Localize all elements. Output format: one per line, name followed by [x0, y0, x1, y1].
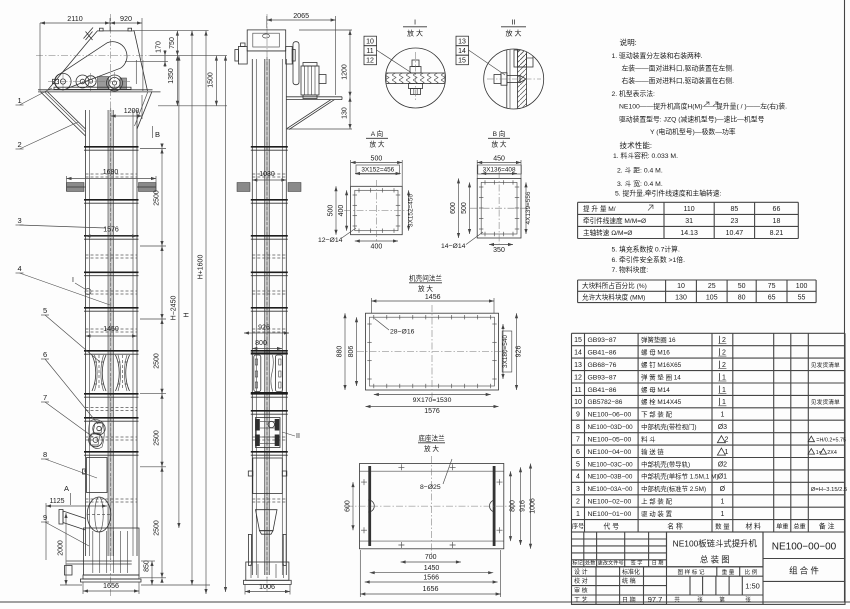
- svg-text:2: 2: [722, 350, 726, 357]
- svg-text:II: II: [296, 433, 300, 440]
- svg-text:1: 1: [720, 511, 724, 518]
- svg-text:左装——面对进料口,驱动装置在左侧.: 左装——面对进料口,驱动装置在左侧.: [622, 64, 735, 73]
- svg-text:8.21: 8.21: [770, 230, 784, 237]
- svg-text:2. 斗 距: 0.4 M.: 2. 斗 距: 0.4 M.: [617, 167, 663, 175]
- svg-text:机壳间法兰: 机壳间法兰: [409, 274, 442, 283]
- svg-text:450: 450: [493, 156, 505, 163]
- svg-text:130: 130: [675, 295, 687, 302]
- svg-text:II: II: [511, 18, 515, 27]
- svg-text:750: 750: [169, 37, 176, 49]
- svg-text:GB93−87: GB93−87: [588, 374, 617, 381]
- svg-text:7: 7: [43, 393, 47, 402]
- svg-text:见发货清单: 见发货清单: [811, 398, 840, 406]
- svg-text:2: 2: [722, 337, 726, 344]
- svg-text:2X4: 2X4: [827, 450, 837, 456]
- svg-text:1:50: 1:50: [745, 582, 760, 591]
- svg-text:3X136=408: 3X136=408: [483, 167, 516, 174]
- svg-text:放 大: 放 大: [491, 140, 506, 149]
- svg-text:13: 13: [574, 362, 582, 369]
- svg-text:数 量: 数 量: [715, 521, 730, 530]
- svg-text:600: 600: [450, 202, 457, 214]
- svg-text:NE100板链斗式提升机: NE100板链斗式提升机: [673, 539, 758, 549]
- svg-text:25: 25: [708, 283, 716, 290]
- svg-text:1576: 1576: [103, 227, 119, 234]
- svg-text:500: 500: [461, 202, 468, 214]
- svg-text:比 例: 比 例: [745, 568, 758, 576]
- svg-text:500: 500: [327, 205, 334, 217]
- svg-text:3. 斗 宽: 0.4 M.: 3. 斗 宽: 0.4 M.: [617, 179, 663, 188]
- svg-text:12−Ø14: 12−Ø14: [318, 237, 343, 244]
- svg-text:14−Ø14: 14−Ø14: [441, 243, 466, 250]
- svg-text:1. 驱动装置分左装和右装两种.: 1. 驱动装置分左装和右装两种.: [612, 51, 703, 60]
- svg-text:1. 料斗容积: 0.033 M.: 1. 料斗容积: 0.033 M.: [613, 151, 678, 160]
- svg-text:2: 2: [724, 437, 728, 444]
- svg-text:重 量: 重 量: [722, 568, 735, 576]
- svg-text:85: 85: [731, 206, 739, 213]
- svg-text:50: 50: [738, 283, 746, 290]
- svg-text:右装——面对进料口,驱动装置在右侧.: 右装——面对进料口,驱动装置在右侧.: [622, 76, 735, 85]
- svg-text:6. 牵引件安全系数 >1倍.: 6. 牵引件安全系数 >1倍.: [612, 255, 686, 264]
- svg-text:1: 1: [722, 387, 726, 394]
- svg-text:400: 400: [338, 205, 345, 217]
- svg-text:螺 母 M14: 螺 母 M14: [641, 385, 670, 394]
- svg-text:NE100−04−00: NE100−04−00: [588, 449, 632, 456]
- svg-text:组 合 件: 组 合 件: [789, 566, 819, 576]
- svg-text:11: 11: [366, 48, 373, 55]
- svg-text:驱动装置型号: JZQ (减速机型号)—速比—机型号: 驱动装置型号: JZQ (减速机型号)—速比—机型号: [619, 114, 765, 123]
- svg-text:下 部 装 配: 下 部 装 配: [641, 410, 672, 419]
- svg-text:螺 栓 M14X45: 螺 栓 M14X45: [641, 397, 682, 406]
- svg-text:第: 第: [719, 596, 725, 604]
- svg-text:中部机壳(带检视门): 中部机壳(带检视门): [641, 422, 696, 431]
- svg-text:65: 65: [768, 295, 776, 302]
- svg-text:料 斗: 料 斗: [641, 435, 656, 444]
- svg-text:400: 400: [371, 244, 383, 251]
- svg-text:350: 350: [493, 247, 505, 254]
- svg-text:10: 10: [677, 283, 685, 290]
- svg-text:28−Ø16: 28−Ø16: [390, 329, 415, 336]
- svg-text:31: 31: [685, 218, 693, 225]
- svg-text:2. 机型表示法:: 2. 机型表示法:: [612, 89, 656, 98]
- svg-text:1566: 1566: [423, 575, 439, 582]
- svg-text:2500: 2500: [153, 430, 160, 446]
- svg-text:2: 2: [18, 140, 22, 149]
- svg-text:螺 钉 M16X65: 螺 钉 M16X65: [641, 360, 682, 369]
- svg-text:1656: 1656: [103, 581, 119, 590]
- svg-text:1576: 1576: [424, 408, 440, 415]
- svg-text:1680: 1680: [103, 169, 119, 176]
- svg-text:日 期: 日 期: [622, 596, 636, 604]
- svg-text:放 大: 放 大: [424, 444, 439, 453]
- svg-text:序号: 序号: [572, 522, 584, 530]
- svg-text:张: 张: [745, 596, 751, 604]
- svg-text:23: 23: [731, 218, 739, 225]
- svg-text:NE100−02−00: NE100−02−00: [588, 499, 632, 506]
- svg-text:3X180=540: 3X180=540: [502, 335, 509, 368]
- svg-text:工 艺: 工 艺: [574, 596, 588, 604]
- svg-text:上 部 装 配: 上 部 装 配: [641, 497, 672, 506]
- svg-text:13: 13: [458, 39, 466, 46]
- svg-text:GB41−86: GB41−86: [588, 350, 617, 357]
- svg-text:Ø=H−3.15/2.5: Ø=H−3.15/2.5: [811, 487, 847, 493]
- svg-text:NE100−03C−00: NE100−03C−00: [588, 461, 634, 468]
- svg-text:10.47: 10.47: [726, 230, 744, 237]
- svg-text:1030: 1030: [259, 171, 275, 178]
- svg-text:图 样 标 记: 图 样 标 记: [677, 568, 704, 576]
- svg-text:中部机壳(标准节 2.5M): 中部机壳(标准节 2.5M): [641, 484, 706, 493]
- svg-text:NE100−01−00: NE100−01−00: [588, 511, 632, 518]
- svg-text:NE100——提升机高度H(M)——提升量( / )—: NE100——提升机高度H(M)——提升量( / )——左(右)装.: [619, 102, 787, 111]
- svg-text:B: B: [155, 130, 160, 139]
- svg-text:共: 共: [674, 596, 680, 604]
- svg-text:1: 1: [720, 499, 724, 506]
- svg-text:2500: 2500: [153, 190, 160, 206]
- svg-text:底座法兰: 底座法兰: [418, 434, 445, 443]
- svg-text:4X139=556: 4X139=556: [525, 191, 532, 224]
- svg-text:标准化: 标准化: [622, 568, 640, 576]
- svg-text:更改文件号: 更改文件号: [598, 559, 624, 567]
- svg-text:8−Ø25: 8−Ø25: [420, 484, 441, 491]
- svg-text:2000: 2000: [57, 540, 64, 556]
- svg-text:7: 7: [576, 437, 580, 444]
- svg-text:9: 9: [43, 513, 47, 522]
- svg-text:110: 110: [684, 206, 695, 213]
- svg-text:1: 1: [724, 449, 728, 456]
- svg-text:12: 12: [366, 58, 374, 65]
- svg-text:1006: 1006: [259, 582, 275, 591]
- svg-text:1450: 1450: [424, 565, 440, 572]
- svg-text:1: 1: [722, 399, 726, 406]
- svg-text:统 稿: 统 稿: [622, 577, 636, 585]
- svg-text:5. 填充系数按 0.7计算.: 5. 填充系数按 0.7计算.: [612, 244, 680, 253]
- svg-text:2500: 2500: [153, 353, 160, 369]
- svg-text:3: 3: [576, 486, 580, 493]
- svg-text:螺 母 M16: 螺 母 M16: [641, 348, 670, 357]
- svg-text:9: 9: [576, 412, 580, 419]
- svg-text:说明:: 说明:: [620, 37, 637, 47]
- svg-text:放 大: 放 大: [418, 284, 433, 293]
- svg-text:850: 850: [143, 560, 150, 572]
- svg-text:A: A: [64, 484, 69, 493]
- svg-text:1125: 1125: [49, 498, 64, 505]
- svg-text:1456: 1456: [425, 294, 441, 301]
- svg-text:NE100−05−00: NE100−05−00: [588, 437, 632, 444]
- svg-text:800: 800: [510, 500, 517, 512]
- svg-text:1: 1: [722, 374, 726, 381]
- svg-text:1656: 1656: [423, 584, 439, 593]
- svg-text:允许大块料块度 (MM): 允许大块料块度 (MM): [582, 293, 645, 302]
- svg-text:14: 14: [458, 48, 466, 55]
- svg-text:2110: 2110: [67, 14, 82, 23]
- svg-text:Ø1: Ø1: [718, 474, 727, 481]
- svg-text:3X152=456: 3X152=456: [408, 194, 415, 227]
- svg-text:技术性能:: 技术性能:: [620, 140, 652, 150]
- svg-text:926: 926: [516, 346, 523, 358]
- svg-text:916: 916: [520, 500, 527, 512]
- svg-text:总 装 图: 总 装 图: [700, 555, 730, 565]
- svg-text:放 大: 放 大: [506, 29, 522, 38]
- svg-text:I: I: [414, 18, 416, 27]
- svg-text:1: 1: [576, 511, 580, 518]
- svg-text:牵引件线速度 M/M=Ø: 牵引件线速度 M/M=Ø: [583, 216, 646, 225]
- svg-text:提 升 量 M/: 提 升 量 M/: [583, 204, 616, 213]
- svg-text:6: 6: [576, 449, 580, 456]
- svg-text:H: H: [183, 312, 190, 317]
- svg-text:审 核: 审 核: [574, 587, 588, 595]
- svg-text:4: 4: [576, 474, 580, 481]
- svg-text:NE100−03B−00: NE100−03B−00: [588, 474, 633, 481]
- svg-text:代 号: 代 号: [604, 521, 620, 530]
- svg-text:700: 700: [425, 554, 437, 561]
- svg-text:806: 806: [348, 346, 355, 358]
- svg-text:备 注: 备 注: [819, 521, 835, 530]
- svg-text:弹簧垫圈 16: 弹簧垫圈 16: [641, 335, 676, 344]
- svg-text:2: 2: [576, 499, 580, 506]
- svg-text:2500: 2500: [153, 520, 160, 536]
- svg-text:GB68−76: GB68−76: [588, 362, 617, 369]
- svg-text:Ø3: Ø3: [718, 424, 727, 431]
- svg-text:驱 动 装 置: 驱 动 装 置: [641, 509, 672, 518]
- svg-text:55: 55: [798, 295, 806, 302]
- svg-text:中部机壳(带导轨): 中部机壳(带导轨): [641, 459, 690, 468]
- svg-text:97.7: 97.7: [648, 595, 663, 604]
- svg-text:处数: 处数: [585, 559, 596, 567]
- svg-text:NE100−00−00: NE100−00−00: [772, 542, 837, 553]
- svg-text:11: 11: [574, 387, 581, 394]
- svg-text:2: 2: [722, 362, 726, 369]
- svg-text:1200: 1200: [124, 108, 140, 115]
- svg-text:放 大: 放 大: [407, 29, 423, 38]
- svg-text:3: 3: [18, 216, 22, 225]
- svg-text:1500: 1500: [208, 72, 215, 88]
- svg-text:880: 880: [336, 346, 343, 358]
- svg-text:8: 8: [43, 450, 47, 459]
- svg-text:1350: 1350: [168, 68, 175, 84]
- svg-text:Ø2: Ø2: [718, 461, 727, 468]
- svg-text:4: 4: [18, 264, 22, 273]
- svg-text:66: 66: [773, 206, 781, 213]
- svg-text:15: 15: [574, 337, 582, 344]
- svg-text:800: 800: [255, 340, 267, 347]
- svg-text:B 向: B 向: [493, 129, 506, 138]
- svg-text:130: 130: [341, 107, 348, 119]
- svg-text:5: 5: [576, 461, 580, 468]
- svg-text:主轴转速 Ω/M=Ø: 主轴转速 Ω/M=Ø: [583, 228, 632, 237]
- svg-text:标记: 标记: [572, 559, 582, 567]
- svg-text:1450: 1450: [103, 326, 119, 333]
- svg-text:9X170=1530: 9X170=1530: [413, 397, 452, 404]
- svg-text:弹 簧 垫 圈 14: 弹 簧 垫 圈 14: [641, 372, 681, 381]
- svg-text:Y (电动机型号)—极数—功率: Y (电动机型号)—极数—功率: [650, 127, 736, 136]
- svg-text:5. 提升量,牵引件线速度和主轴转速:: 5. 提升量,牵引件线速度和主轴转速:: [615, 188, 722, 197]
- svg-text:5: 5: [43, 306, 47, 315]
- svg-text:A 向: A 向: [371, 129, 383, 138]
- svg-text:见发货清单: 见发货清单: [811, 361, 840, 369]
- svg-text:日 期: 日 期: [652, 560, 664, 567]
- svg-text:10: 10: [366, 39, 374, 46]
- svg-text:总重: 总重: [793, 522, 805, 530]
- svg-text:100: 100: [796, 283, 808, 290]
- svg-text:75: 75: [768, 283, 776, 290]
- svg-text:1: 1: [720, 412, 724, 419]
- svg-text:3X152=456: 3X152=456: [361, 167, 394, 174]
- svg-text:材 料: 材 料: [746, 521, 762, 530]
- svg-text:Ø: Ø: [720, 486, 726, 493]
- svg-text:中部机壳(单标节 1.5M,1 M): 中部机壳(单标节 1.5M,1 M): [641, 472, 718, 481]
- svg-text:7. 物料块度:: 7. 物料块度:: [612, 265, 649, 274]
- svg-text:NE100−06−00: NE100−06−00: [588, 412, 632, 419]
- svg-text:=H/0.2+5.75: =H/0.2+5.75: [816, 438, 846, 444]
- svg-text:1200: 1200: [341, 64, 348, 80]
- svg-text:926: 926: [258, 325, 270, 332]
- svg-text:15: 15: [458, 58, 466, 65]
- svg-text:1: 1: [18, 96, 22, 105]
- svg-text:12: 12: [574, 374, 582, 381]
- svg-text:输 送 链: 输 送 链: [641, 447, 664, 456]
- svg-text:105: 105: [706, 295, 718, 302]
- svg-text:170: 170: [156, 41, 163, 53]
- svg-text:920: 920: [120, 14, 132, 23]
- svg-text:1006: 1006: [530, 498, 537, 514]
- svg-text:签 字: 签 字: [631, 559, 643, 567]
- svg-text:2065: 2065: [293, 11, 309, 20]
- svg-text:GB93−87: GB93−87: [588, 337, 617, 344]
- svg-text:校 对: 校 对: [574, 577, 588, 585]
- svg-text:10: 10: [574, 399, 582, 406]
- svg-text:80: 80: [738, 295, 746, 302]
- svg-text:14: 14: [574, 350, 582, 357]
- svg-text:500: 500: [371, 156, 383, 163]
- svg-text:H−2450: H−2450: [170, 296, 177, 321]
- svg-text:放 大: 放 大: [369, 140, 384, 149]
- svg-text:名 称: 名 称: [667, 521, 683, 530]
- svg-text:18: 18: [773, 218, 781, 225]
- svg-text:大块料所占百分比 (%): 大块料所占百分比 (%): [582, 281, 647, 290]
- svg-text:I: I: [72, 277, 74, 284]
- svg-text:NE100−03A−00: NE100−03A−00: [588, 486, 633, 493]
- svg-text:张: 张: [697, 596, 703, 604]
- svg-text:H+1600: H+1600: [197, 255, 204, 280]
- svg-text:单重: 单重: [776, 522, 788, 530]
- svg-text:600: 600: [344, 500, 351, 512]
- svg-text:GB41−86: GB41−86: [588, 387, 617, 394]
- svg-text:NE100−03D−00: NE100−03D−00: [588, 424, 634, 431]
- svg-text:14.13: 14.13: [680, 230, 698, 237]
- svg-text:8: 8: [576, 424, 580, 431]
- svg-text:设 计: 设 计: [574, 568, 588, 576]
- svg-text:GB5782−86: GB5782−86: [588, 399, 623, 406]
- svg-text:6: 6: [43, 350, 47, 359]
